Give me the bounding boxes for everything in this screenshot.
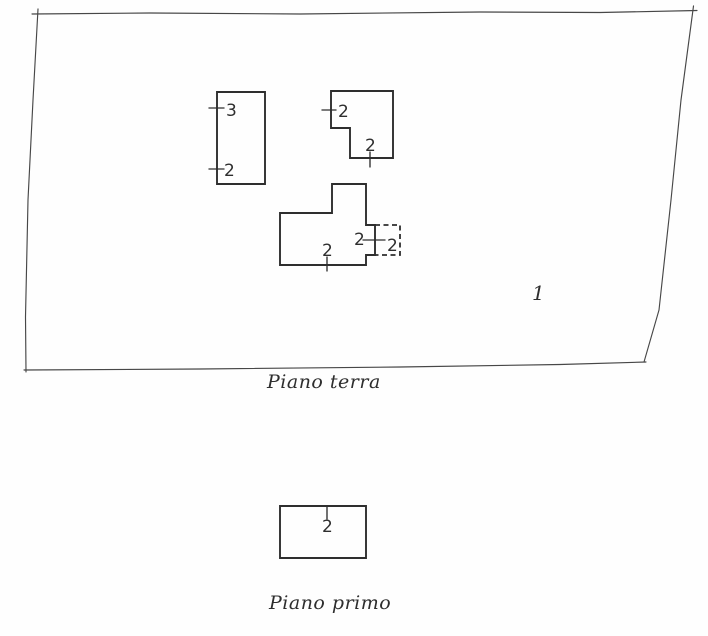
label-first-floor-unit: 2	[322, 517, 333, 537]
label-building-left-lower: 2	[224, 161, 235, 181]
parcel-boundary-top-edge	[32, 11, 697, 15]
label-building-main-bottom: 2	[322, 241, 333, 261]
label-building-top-left: 2	[338, 102, 349, 122]
parcel-boundary-left-edge	[26, 9, 39, 372]
ground-floor-caption: Piano terra	[266, 371, 381, 393]
first-floor-caption: Piano primo	[268, 592, 391, 614]
label-building-main-right: 2	[354, 230, 365, 250]
label-building-top-bottom: 2	[365, 136, 376, 156]
subaltern-tick-marks	[209, 108, 385, 519]
label-building-annex: 2	[387, 236, 398, 256]
parcel-number-label: 1	[532, 281, 545, 305]
ground-floor-buildings	[217, 91, 400, 265]
parcel-boundary	[24, 6, 697, 372]
label-building-left-upper: 3	[226, 101, 237, 121]
cadastral-sketch: 3 2 2 2 2 2 2 1 2 Piano terra Piano prim…	[0, 0, 708, 636]
parcel-boundary-right-edge	[644, 6, 694, 362]
cadastral-sketch-sheet: 3 2 2 2 2 2 2 1 2 Piano terra Piano prim…	[0, 0, 708, 636]
parcel-boundary-bottom-edge	[24, 362, 646, 370]
